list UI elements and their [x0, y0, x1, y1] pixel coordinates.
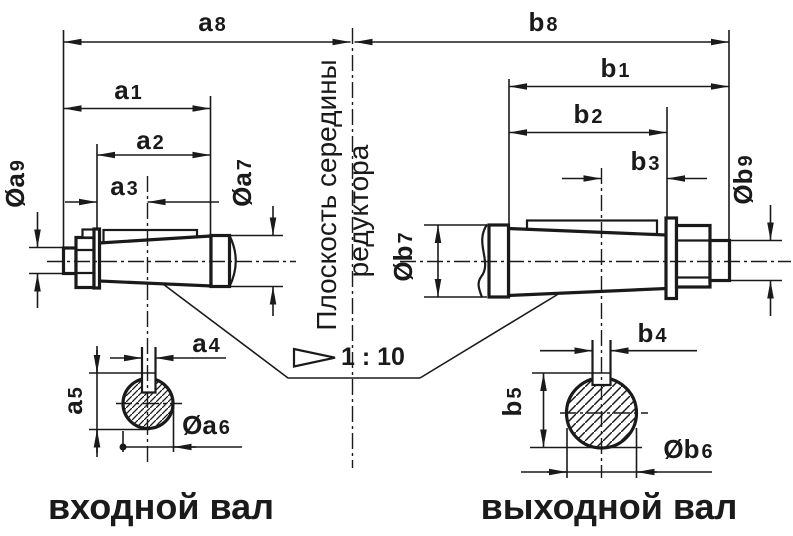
output-shaft-caption: выходной вал [481, 486, 738, 527]
output-shaft-view [400, 218, 791, 299]
dim-label-b7: Øb7 [388, 232, 418, 281]
dim-label-a4: a4 [192, 328, 220, 358]
dim-label-b9: Øb9 [728, 155, 758, 204]
captions: входной вал выходной вал [48, 486, 737, 527]
input-shaft-thread-stub [64, 248, 77, 274]
dim-label-a2: a2 [136, 125, 164, 155]
output-shaft-section [560, 168, 648, 478]
input-shaft-nut [76, 238, 94, 288]
dim-label-b5: b5 [497, 387, 527, 416]
output-shaft-thread-stub [710, 241, 730, 281]
dim-label-a9: Øa9 [0, 160, 30, 208]
dim-label-b4: b4 [637, 318, 667, 348]
center-plane-label-line2: редуктора [343, 144, 374, 277]
drawing-canvas: Плоскость середины редуктора 1 : 10 [0, 0, 793, 536]
input-shaft-section [116, 176, 182, 462]
dim-label-a5: a5 [58, 387, 88, 415]
dim-label-a6: Øa6 [182, 410, 230, 440]
center-plane-label-line1: Плоскость середины [311, 59, 342, 330]
input-shaft-lock-tab [83, 230, 95, 238]
dim-a6-origin-dot [120, 444, 127, 451]
dim-label-a3: a3 [110, 171, 138, 201]
center-plane: Плоскость середины редуктора [311, 28, 374, 468]
dim-label-b2: b2 [573, 99, 602, 129]
dim-label-b3: b3 [630, 146, 659, 176]
taper-ratio-label: 1 : 10 [341, 343, 405, 371]
dim-label-b6: Øb6 [663, 434, 712, 464]
dim-label-a7: Øa7 [227, 159, 257, 207]
dim-label-b8: b8 [528, 7, 557, 37]
input-shaft-view [47, 229, 296, 288]
shaft-dimension-diagram: Плоскость середины редуктора 1 : 10 [0, 0, 793, 536]
dim-label-a8: a8 [198, 7, 226, 37]
taper-symbol-icon [294, 349, 335, 367]
dim-label-a1: a1 [114, 75, 142, 105]
dim-label-b1: b1 [600, 53, 629, 83]
input-shaft-caption: входной вал [48, 486, 274, 527]
taper-callout: 1 : 10 [294, 343, 405, 371]
input-shaft-washer [94, 229, 100, 288]
